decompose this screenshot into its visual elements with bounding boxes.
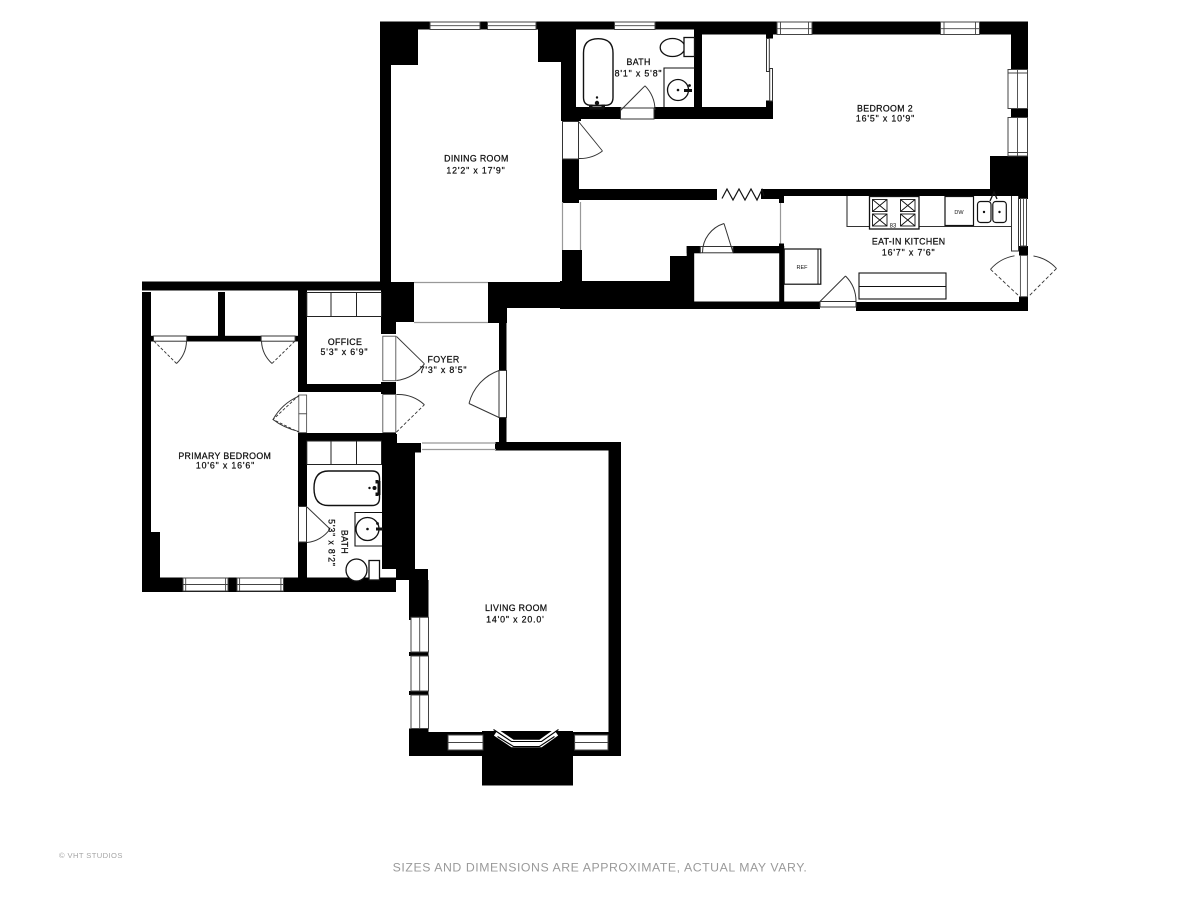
svg-text:FOYER: FOYER	[427, 355, 459, 365]
svg-text:8'1" x 5'8": 8'1" x 5'8"	[615, 69, 663, 79]
svg-text:12'2" x 17'9": 12'2" x 17'9"	[446, 166, 505, 176]
svg-text:EAT-IN KITCHEN: EAT-IN KITCHEN	[872, 237, 946, 247]
svg-text:5'3" x 6'9": 5'3" x 6'9"	[320, 347, 368, 357]
svg-text:© VHT STUDIOS: © VHT STUDIOS	[59, 851, 123, 860]
svg-text:7'3" x 8'5": 7'3" x 8'5"	[420, 365, 468, 375]
svg-text:LIVING ROOM: LIVING ROOM	[485, 603, 548, 613]
svg-text:OFFICE: OFFICE	[328, 337, 362, 347]
svg-text:BEDROOM 2: BEDROOM 2	[857, 103, 913, 113]
svg-text:10'6" x 16'6": 10'6" x 16'6"	[196, 461, 255, 471]
svg-text:DW: DW	[954, 210, 964, 216]
svg-text:83: 83	[890, 224, 897, 230]
svg-text:SIZES AND DIMENSIONS ARE APPRO: SIZES AND DIMENSIONS ARE APPROXIMATE, AC…	[393, 861, 808, 875]
svg-text:14'0" x 20.0': 14'0" x 20.0'	[486, 615, 545, 625]
svg-text:16'7" x 7'6": 16'7" x 7'6"	[882, 247, 936, 257]
svg-text:PRIMARY BEDROOM: PRIMARY BEDROOM	[178, 451, 271, 461]
svg-text:REF: REF	[797, 265, 809, 271]
svg-text:BATH: BATH	[339, 530, 349, 554]
svg-text:16'5" x 10'9": 16'5" x 10'9"	[856, 114, 915, 124]
svg-text:DINING ROOM: DINING ROOM	[444, 153, 508, 163]
svg-text:BATH: BATH	[626, 57, 650, 67]
svg-text:5'3" x 8'2": 5'3" x 8'2"	[326, 519, 336, 567]
